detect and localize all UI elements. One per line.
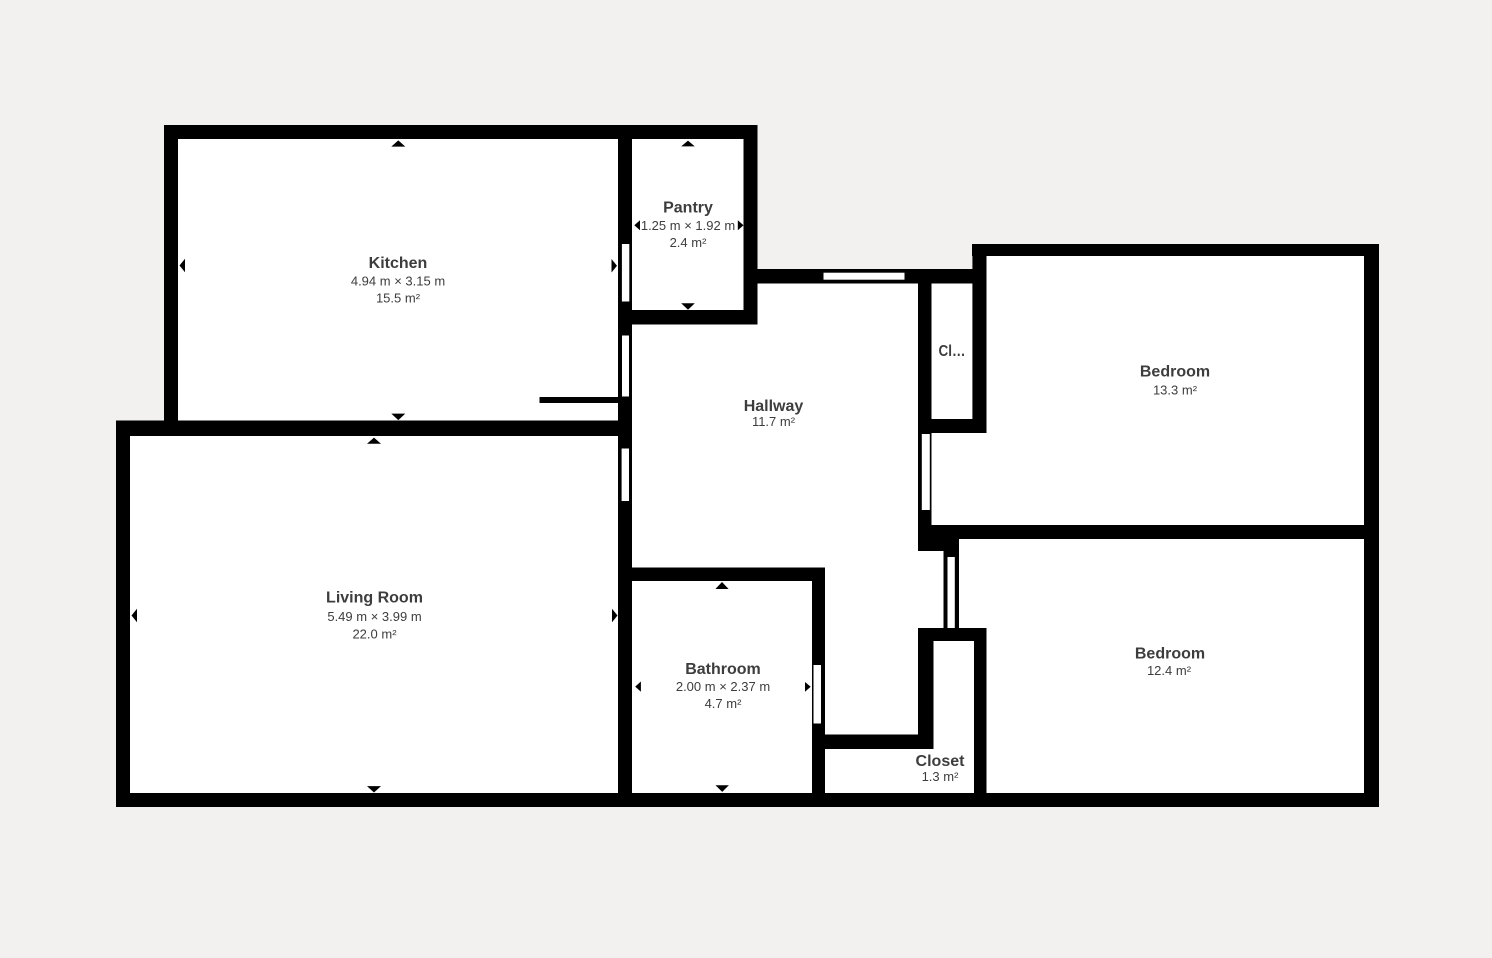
svg-text:Bedroom: Bedroom xyxy=(1140,364,1210,381)
svg-text:22.0 m²: 22.0 m² xyxy=(352,627,397,642)
svg-text:12.4 m²: 12.4 m² xyxy=(1147,663,1192,678)
svg-text:Kitchen: Kitchen xyxy=(369,255,428,272)
svg-text:Bathroom: Bathroom xyxy=(685,661,761,678)
svg-text:1.3 m²: 1.3 m² xyxy=(922,769,960,784)
svg-text:Living Room: Living Room xyxy=(326,590,423,607)
svg-text:4.7 m²: 4.7 m² xyxy=(705,696,743,711)
svg-text:2.00 m × 2.37 m: 2.00 m × 2.37 m xyxy=(676,679,770,694)
svg-text:Pantry: Pantry xyxy=(663,200,713,217)
svg-text:15.5 m²: 15.5 m² xyxy=(376,291,421,306)
svg-text:Cl…: Cl… xyxy=(939,343,966,360)
svg-text:11.7 m²: 11.7 m² xyxy=(752,414,796,429)
svg-text:5.49 m × 3.99 m: 5.49 m × 3.99 m xyxy=(327,609,421,624)
svg-text:13.3 m²: 13.3 m² xyxy=(1153,383,1198,398)
svg-text:4.94 m × 3.15 m: 4.94 m × 3.15 m xyxy=(351,274,445,289)
svg-text:Bedroom: Bedroom xyxy=(1135,646,1205,663)
svg-text:Closet: Closet xyxy=(916,753,966,770)
svg-text:Hallway: Hallway xyxy=(744,398,804,415)
svg-text:2.4 m²: 2.4 m² xyxy=(670,235,708,250)
svg-text:1.25 m × 1.92 m: 1.25 m × 1.92 m xyxy=(641,218,735,233)
